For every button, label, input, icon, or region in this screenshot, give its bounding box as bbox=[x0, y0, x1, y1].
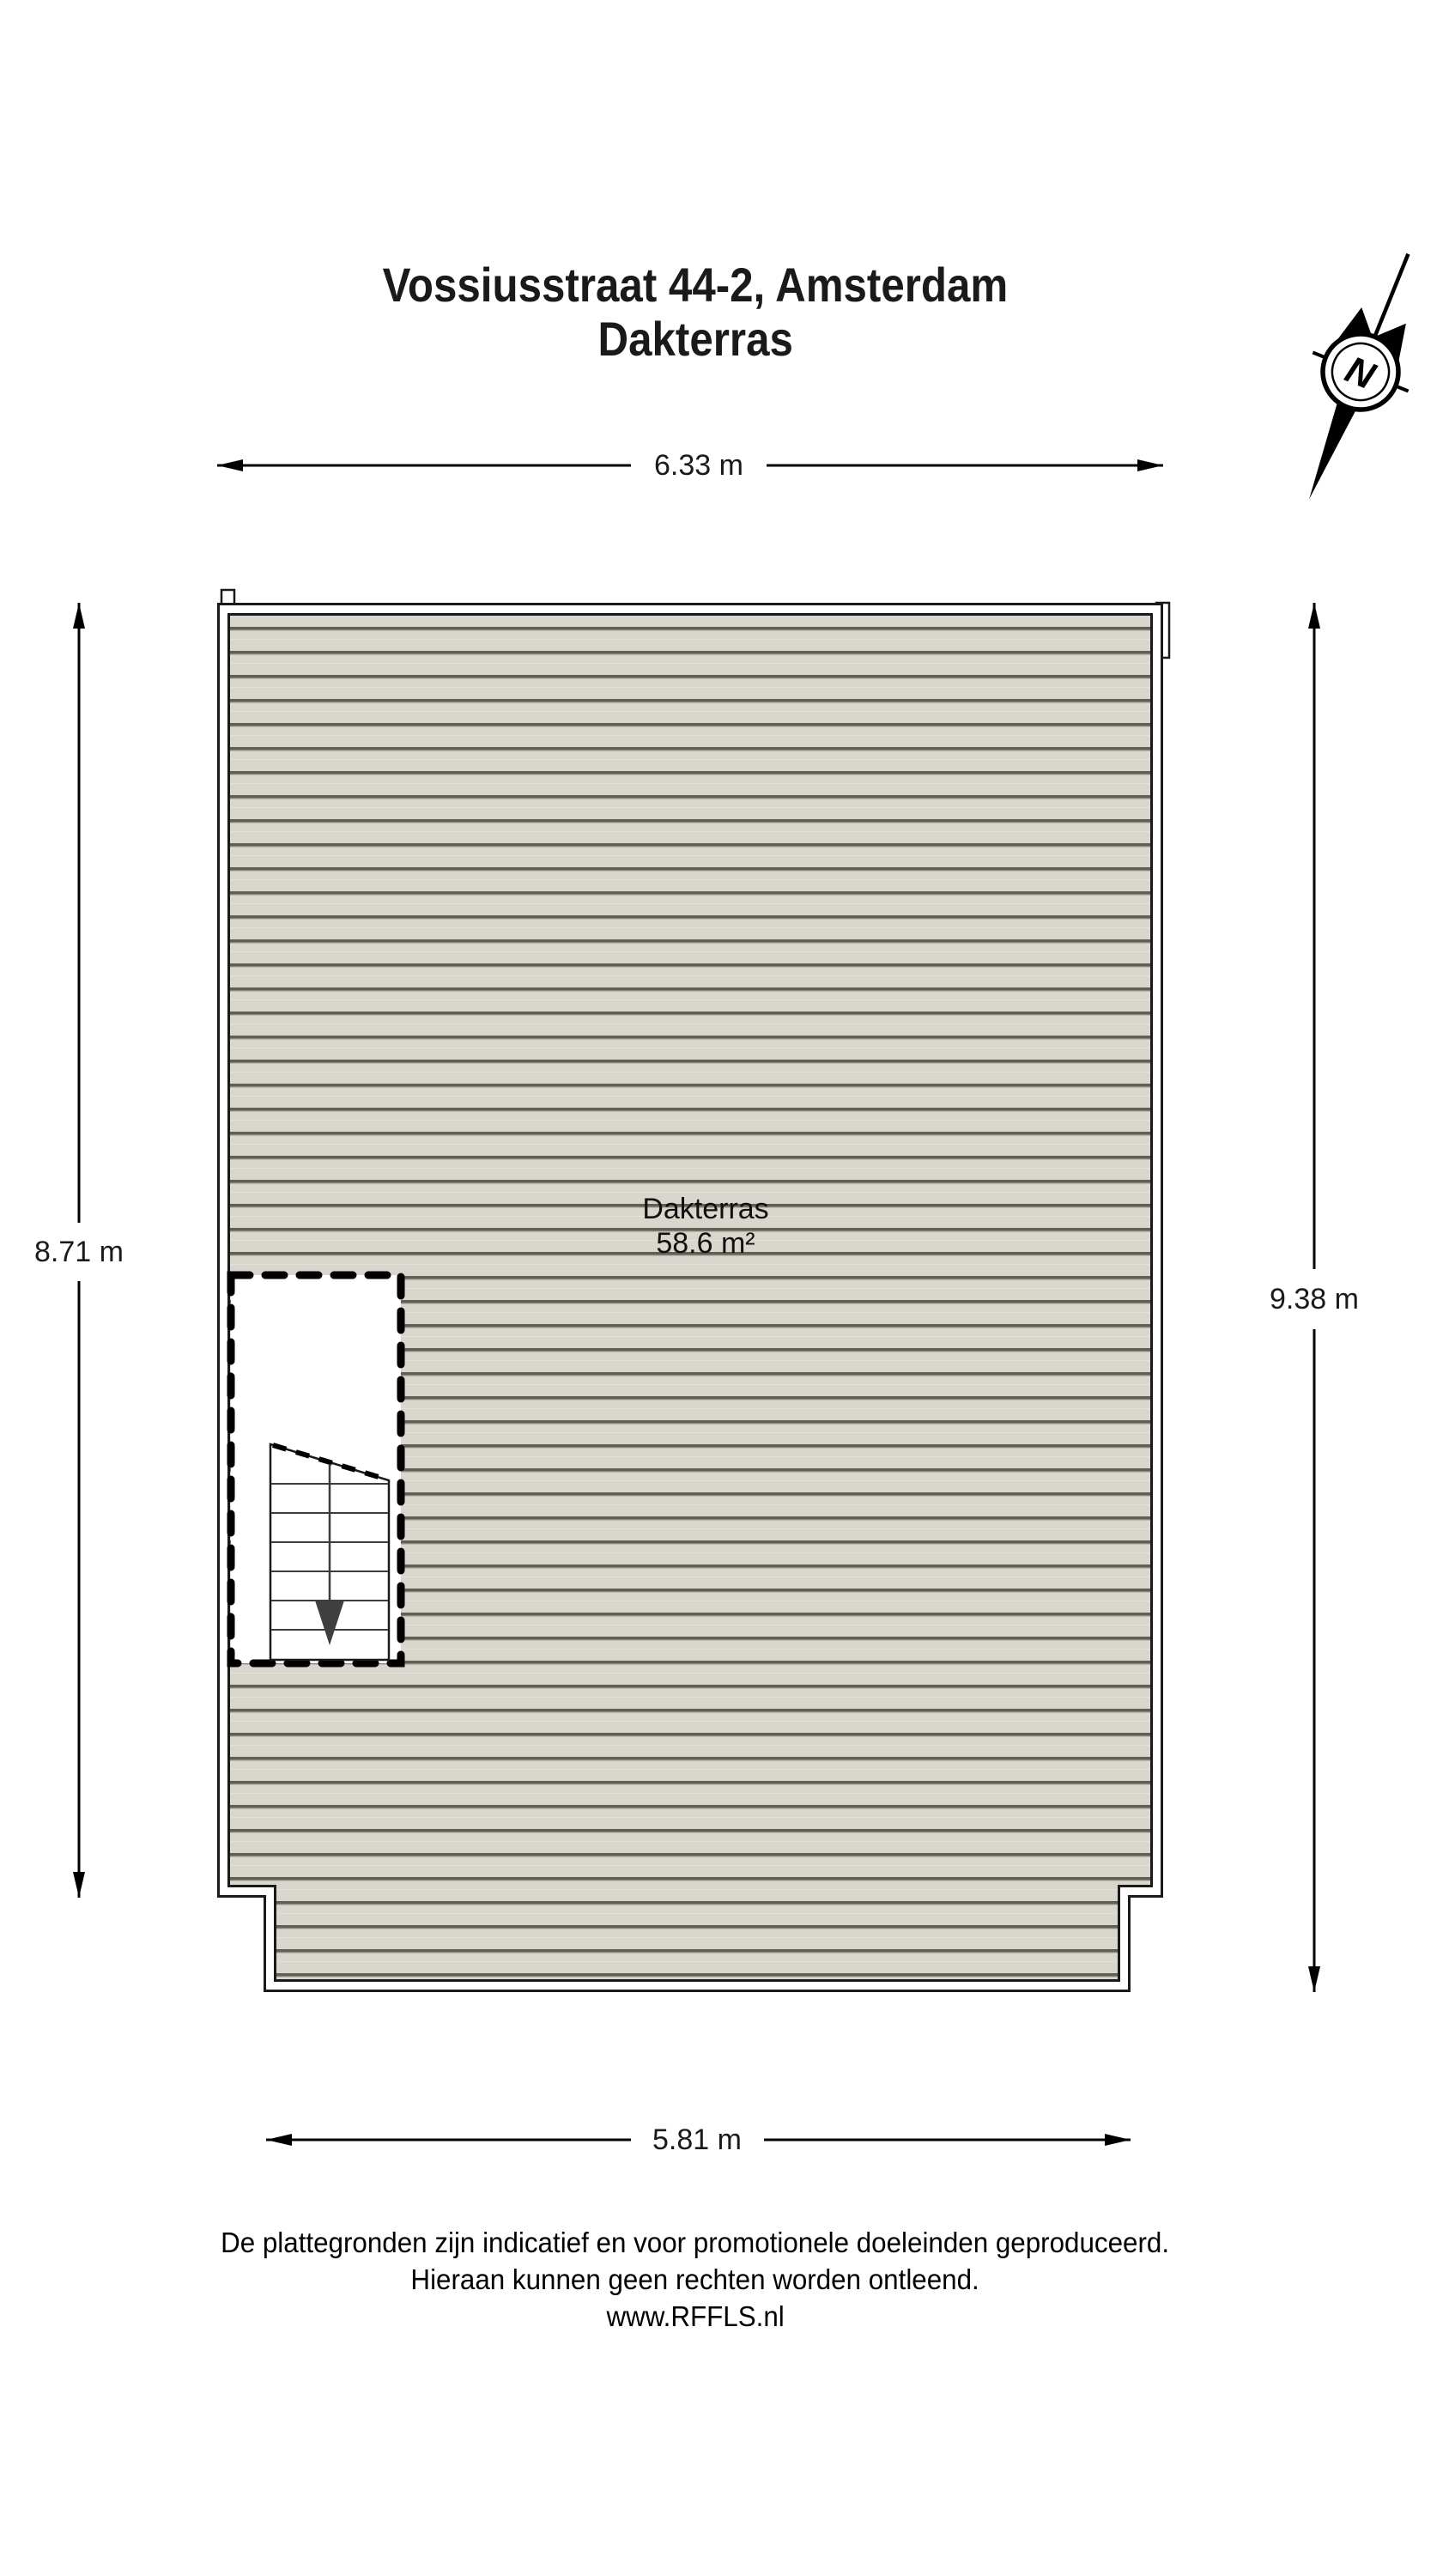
floorplan-page: { "title": { "line1": "Vossiusstraat 44-… bbox=[0, 0, 1449, 2576]
disclaimer-line-2: Hieraan kunnen geen rechten worden ontle… bbox=[0, 2261, 1391, 2298]
dimension-label-left: 8.71 m bbox=[29, 1237, 129, 1267]
room-label: Dakterras 58.6 m² bbox=[642, 1192, 768, 1261]
dimension-label-top: 6.33 m bbox=[649, 451, 749, 480]
compass-icon: N bbox=[1261, 234, 1449, 519]
staircase bbox=[270, 1444, 389, 1660]
dimension-label-right: 9.38 m bbox=[1264, 1285, 1364, 1314]
dimension-label-bottom: 5.81 m bbox=[647, 2125, 747, 2154]
floorplan-graphic: N bbox=[0, 0, 1449, 2576]
disclaimer-line-1: De plattegronden zijn indicatief en voor… bbox=[0, 2224, 1391, 2261]
room-area: 58.6 m² bbox=[642, 1226, 768, 1261]
disclaimer: De plattegronden zijn indicatief en voor… bbox=[0, 2224, 1391, 2335]
room-name: Dakterras bbox=[642, 1192, 768, 1226]
disclaimer-website: www.RFFLS.nl bbox=[0, 2298, 1391, 2335]
